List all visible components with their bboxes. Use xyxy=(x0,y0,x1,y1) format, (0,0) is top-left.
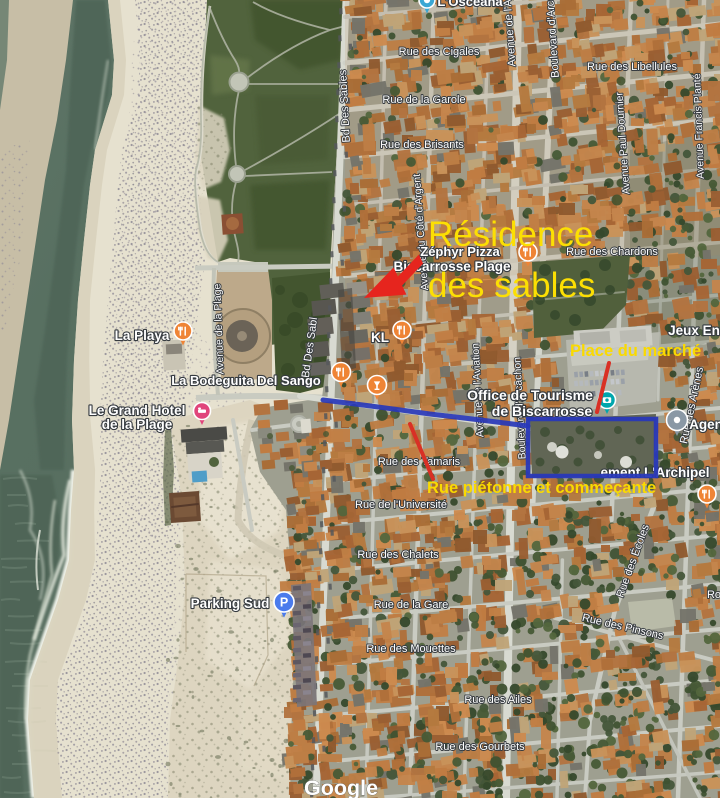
svg-text:de Biscarrosse: de Biscarrosse xyxy=(492,403,593,419)
svg-text:Rue des Mouettes: Rue des Mouettes xyxy=(366,643,456,655)
svg-text:Rue des Gourbets: Rue des Gourbets xyxy=(435,741,525,753)
svg-text:La Playa: La Playa xyxy=(115,328,170,343)
svg-text:Ro: Ro xyxy=(707,589,720,601)
svg-text:Rue des Libellules: Rue des Libellules xyxy=(587,61,677,73)
svg-text:Parking Sud: Parking Sud xyxy=(191,596,270,611)
svg-text:La Bodeguita Del Sango: La Bodeguita Del Sango xyxy=(171,373,321,388)
svg-text:des sables: des sables xyxy=(428,266,595,305)
svg-text:Rue des Brisants: Rue des Brisants xyxy=(380,139,464,151)
svg-text:L'Oscéana: L'Oscéana xyxy=(437,0,503,9)
svg-text:Rue de la Gare: Rue de la Gare xyxy=(374,599,449,611)
svg-text:Rue des Chalets: Rue des Chalets xyxy=(357,549,439,561)
svg-text:Jeux En: Jeux En xyxy=(668,323,720,338)
svg-text:P: P xyxy=(280,595,288,609)
svg-text:Résidence: Résidence xyxy=(428,215,593,254)
svg-text:Rue piétonne et commeçante: Rue piétonne et commeçante xyxy=(427,479,656,497)
svg-text:Office de Tourisme: Office de Tourisme xyxy=(467,387,593,403)
svg-text:Rue des Ailes: Rue des Ailes xyxy=(464,694,532,706)
svg-text:de la Plage: de la Plage xyxy=(102,417,173,432)
svg-text:Google: Google xyxy=(304,776,378,798)
svg-text:Rue de l'Université: Rue de l'Université xyxy=(355,499,447,511)
svg-text:Rue des Tamaris: Rue des Tamaris xyxy=(378,456,461,468)
svg-text:Place du marché: Place du marché xyxy=(570,342,701,360)
svg-text:Agen: Agen xyxy=(689,417,720,432)
svg-text:Rue de la Garole: Rue de la Garole xyxy=(382,94,465,106)
svg-text:KL: KL xyxy=(371,330,389,345)
svg-text:Rue des Cigales: Rue des Cigales xyxy=(399,46,480,58)
svg-text:Le Grand Hotel: Le Grand Hotel xyxy=(89,403,186,418)
